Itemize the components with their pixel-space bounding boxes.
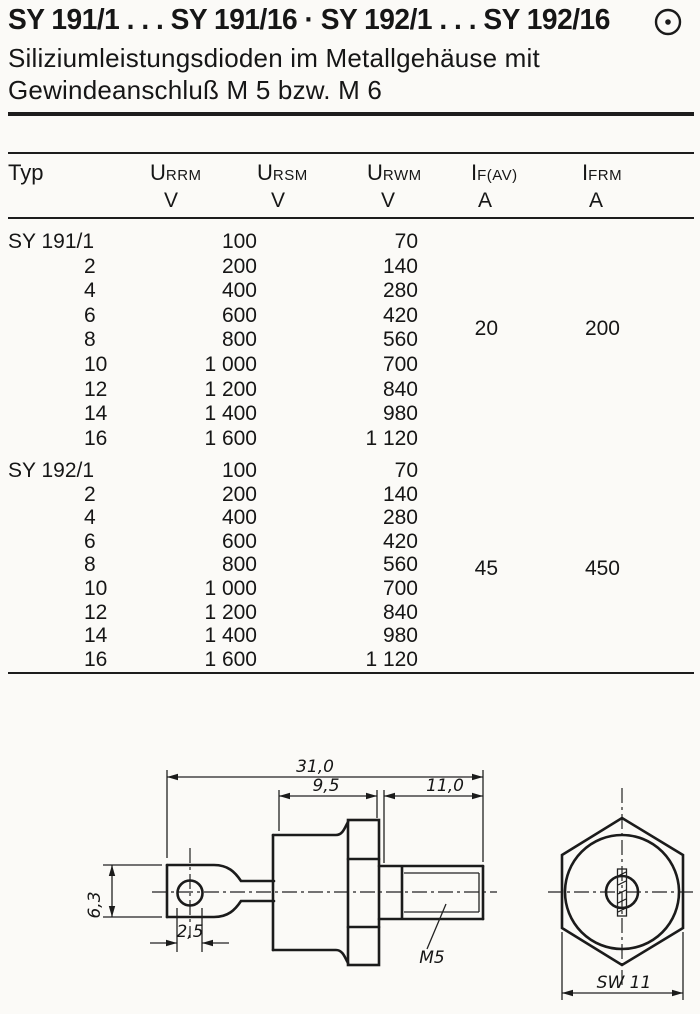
- circled-dot-icon: [653, 7, 683, 37]
- cell-urrm-ursm: 600: [141, 305, 257, 327]
- cell-typ: 14: [8, 403, 141, 425]
- cell-typ: 2: [8, 256, 141, 278]
- cell-urrm-ursm: 400: [141, 280, 257, 302]
- cell-urrm-ursm: 1 000: [141, 578, 257, 600]
- cell-urwm: 1 120: [257, 649, 418, 671]
- table-row: SY 191/110070: [8, 231, 692, 256]
- cell-urwm: 700: [257, 578, 418, 600]
- cell-urrm-ursm: 100: [141, 231, 257, 253]
- header-divider: [8, 112, 694, 116]
- cell-typ: 16: [8, 649, 141, 671]
- table-row: 141 400980: [8, 625, 692, 649]
- subtitle-line-1: Siliziumleistungsdioden im Metallgehäuse…: [8, 43, 540, 73]
- svg-text:6,3: 6,3: [85, 891, 105, 918]
- dim-total-length: 31,0: [167, 757, 483, 862]
- svg-text:2,5: 2,5: [176, 922, 203, 942]
- svg-text:SW 11: SW 11: [597, 973, 652, 993]
- cell-urrm-ursm: 100: [141, 460, 257, 482]
- cell-urwm: 420: [257, 531, 418, 553]
- cell-ifrm-sy191: 200: [540, 318, 620, 340]
- cell-typ: 4: [8, 507, 141, 529]
- cell-typ: 8: [8, 554, 141, 576]
- cell-typ: 2: [8, 484, 141, 506]
- cell-urrm-ursm: 1 200: [141, 379, 257, 401]
- cell-urwm: 560: [257, 329, 418, 351]
- unit-urrm: V: [150, 189, 202, 213]
- cell-typ: 12: [8, 602, 141, 624]
- solder-lug: [167, 865, 274, 917]
- cell-urrm-ursm: 1 400: [141, 403, 257, 425]
- table-row: SY 192/110070: [8, 460, 692, 484]
- cell-urwm: 140: [257, 484, 418, 506]
- cell-urrm-ursm: 1 400: [141, 625, 257, 647]
- cell-urrm-ursm: 1 600: [141, 649, 257, 671]
- cell-urwm: 280: [257, 280, 418, 302]
- cell-typ: 6: [8, 305, 141, 327]
- cell-urwm: 420: [257, 305, 418, 327]
- cell-ifav-sy192: 45: [430, 558, 498, 580]
- column-header-ursm: URSM V: [257, 160, 308, 213]
- cell-urrm-ursm: 1 000: [141, 354, 257, 376]
- table-row: 141 400980: [8, 403, 692, 428]
- svg-text:31,0: 31,0: [296, 757, 334, 777]
- table-row: 4400280: [8, 280, 692, 305]
- table-block-sy192: 45 450 SY 192/11007022001404400280660042…: [8, 460, 692, 672]
- cell-urwm: 980: [257, 625, 418, 647]
- table-row: 101 000700: [8, 354, 692, 379]
- svg-text:11,0: 11,0: [426, 776, 464, 796]
- table-row: 121 200840: [8, 602, 692, 626]
- subtitle-line-2: Gewindeanschluß M 5 bzw. M 6: [8, 75, 382, 105]
- cell-urwm: 280: [257, 507, 418, 529]
- column-header-typ: Typ: [8, 160, 43, 186]
- cell-ifrm-sy192: 450: [540, 558, 620, 580]
- table-row: 161 6001 120: [8, 649, 692, 673]
- table-row: 2200140: [8, 256, 692, 281]
- cell-urrm-ursm: 800: [141, 329, 257, 351]
- table-row: 4400280: [8, 507, 692, 531]
- cell-urwm: 140: [257, 256, 418, 278]
- thread-label: M5: [419, 904, 446, 968]
- page-subtitle: Siliziumleistungsdioden im Metallgehäuse…: [8, 42, 668, 106]
- cell-typ: SY 191/1: [8, 231, 141, 253]
- unit-ifav: A: [471, 189, 518, 213]
- dim-body-length: 9,5: [279, 776, 377, 831]
- cell-typ: 8: [8, 329, 141, 351]
- unit-urwm: V: [367, 189, 422, 213]
- cell-urrm-ursm: 200: [141, 256, 257, 278]
- table-top-rule: [8, 152, 694, 154]
- column-header-ifav: IF(AV) A: [471, 160, 518, 213]
- dim-lug-height: 6,3: [85, 865, 162, 919]
- cell-ifav-sy191: 20: [430, 318, 498, 340]
- table-head-rule: [8, 217, 694, 219]
- column-header-ifrm: IFRM A: [582, 160, 622, 213]
- cell-typ: 10: [8, 578, 141, 600]
- cell-urwm: 560: [257, 554, 418, 576]
- column-header-urrm: URRM V: [150, 160, 202, 213]
- unit-ursm: V: [257, 189, 308, 213]
- page-title: SY 191/1 . . . SY 191/16 · SY 192/1 . . …: [8, 4, 629, 37]
- table-row: 6600420: [8, 531, 692, 555]
- cell-typ: 6: [8, 531, 141, 553]
- cell-urrm-ursm: 1 200: [141, 602, 257, 624]
- dim-stud-length: 11,0: [384, 776, 483, 863]
- cell-urwm: 840: [257, 602, 418, 624]
- cell-urrm-ursm: 600: [141, 531, 257, 553]
- cell-urwm: 700: [257, 354, 418, 376]
- cell-typ: 14: [8, 625, 141, 647]
- svg-text:M5: M5: [419, 948, 444, 968]
- table-row: 121 200840: [8, 379, 692, 404]
- column-header-urwm: URWM V: [367, 160, 422, 213]
- table-row: 101 000700: [8, 578, 692, 602]
- cell-urrm-ursm: 1 600: [141, 428, 257, 450]
- cell-urrm-ursm: 800: [141, 554, 257, 576]
- cell-typ: 12: [8, 379, 141, 401]
- table-row: 161 6001 120: [8, 428, 692, 453]
- table-row: 2200140: [8, 484, 692, 508]
- cell-typ: 4: [8, 280, 141, 302]
- cell-typ: 10: [8, 354, 141, 376]
- cell-typ: SY 192/1: [8, 460, 141, 482]
- cell-urwm: 980: [257, 403, 418, 425]
- cell-urwm: 840: [257, 379, 418, 401]
- cell-urwm: 1 120: [257, 428, 418, 450]
- cell-urrm-ursm: 400: [141, 507, 257, 529]
- table-block-sy191: 20 200 SY 191/11007022001404400280660042…: [8, 231, 692, 452]
- datasheet-page: SY 191/1 . . . SY 191/16 · SY 192/1 . . …: [0, 0, 700, 1014]
- technical-drawing: 31,0 9,5 11,0 6,3: [0, 745, 700, 1014]
- svg-text:9,5: 9,5: [312, 776, 339, 796]
- cell-urwm: 70: [257, 460, 418, 482]
- cell-typ: 16: [8, 428, 141, 450]
- cell-urwm: 70: [257, 231, 418, 253]
- unit-ifrm: A: [582, 189, 622, 213]
- cell-urrm-ursm: 200: [141, 484, 257, 506]
